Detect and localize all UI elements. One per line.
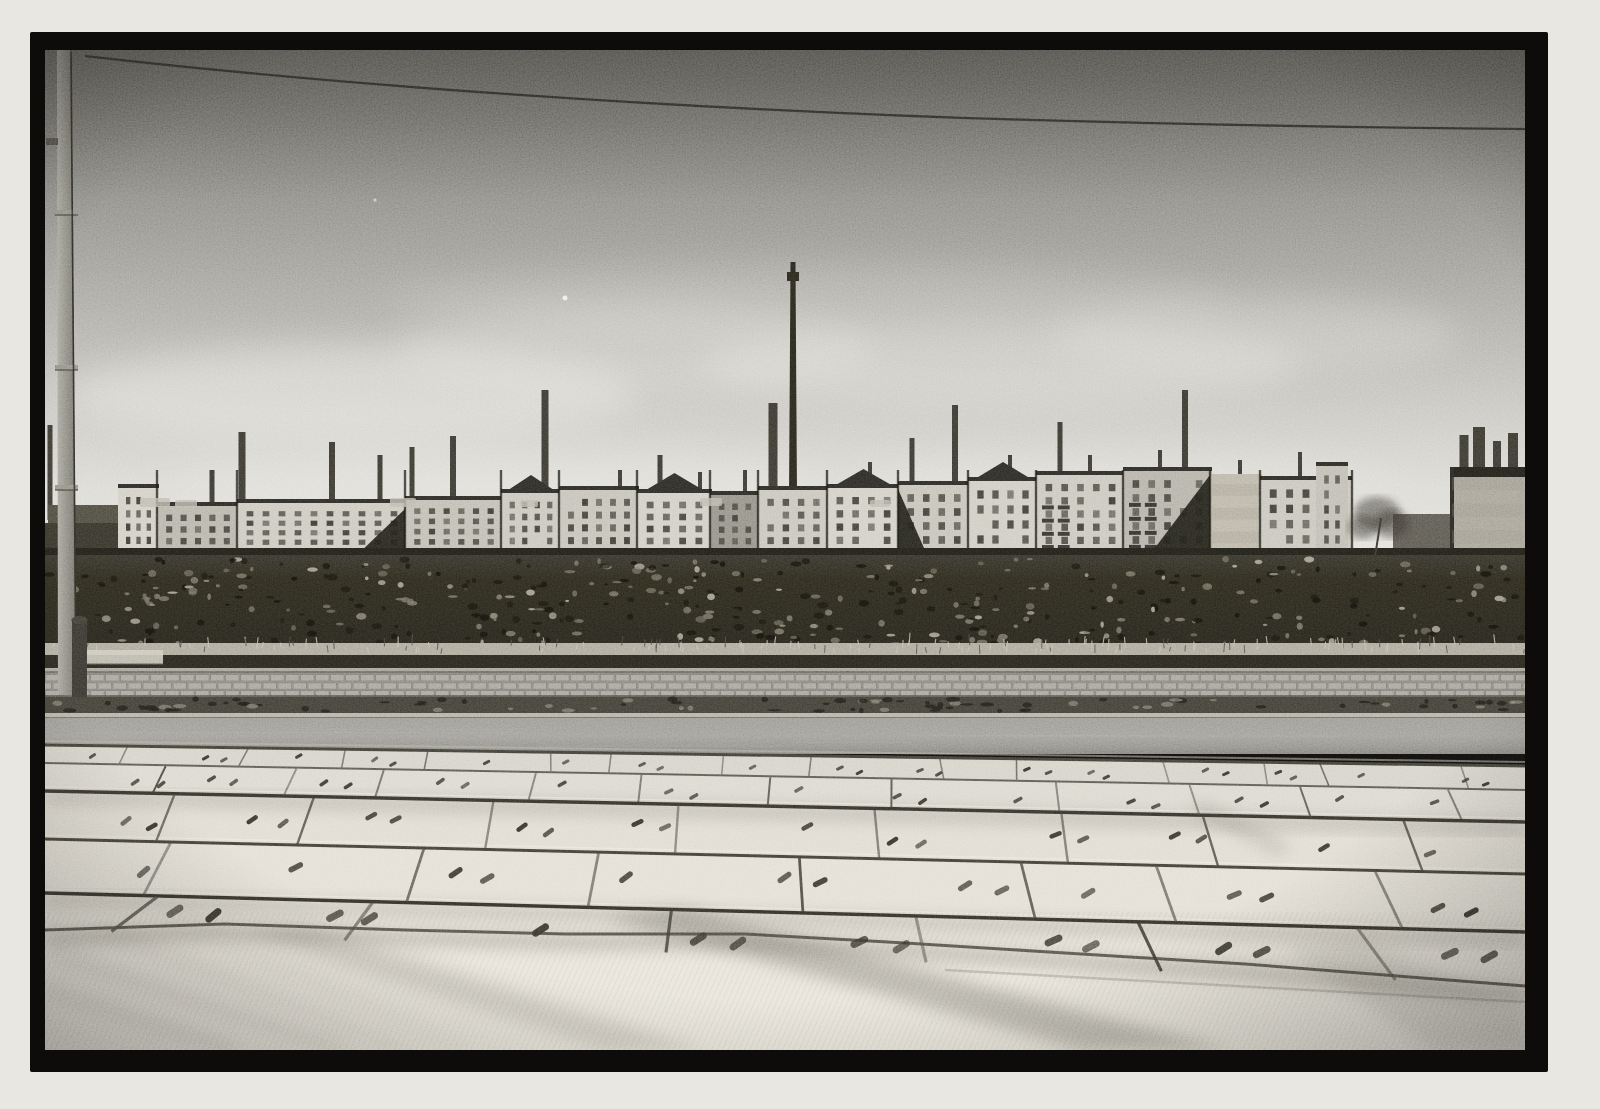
- photo-paper: [0, 0, 1600, 1109]
- photograph: [45, 50, 1525, 1050]
- film-grain-fine: [45, 50, 1525, 1050]
